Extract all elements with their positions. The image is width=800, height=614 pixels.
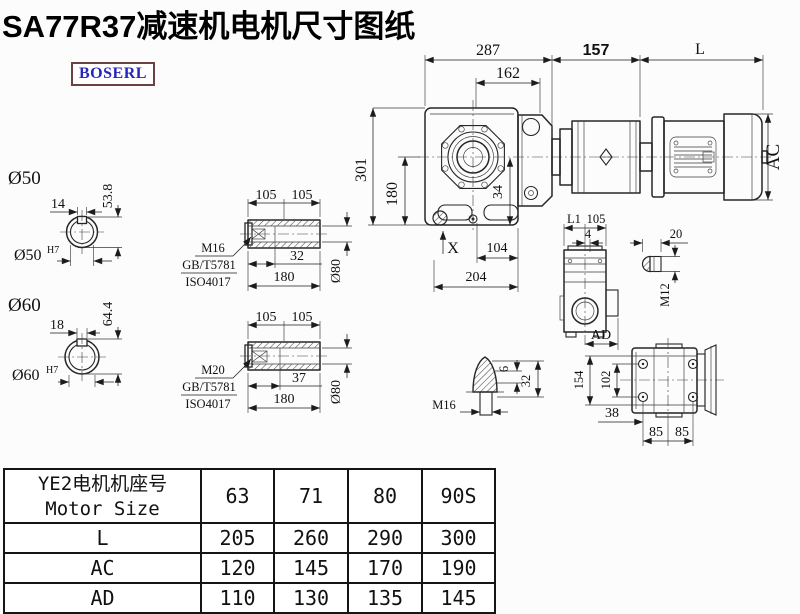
gearbox-front-view xyxy=(425,100,552,232)
dim-dia-20: Ø80 xyxy=(329,380,344,404)
dim-keyh-50: 53.8 xyxy=(101,184,116,209)
dim-len-16: 180 xyxy=(274,270,295,285)
gearbox-side-view: L1 105 4 AD xyxy=(560,212,618,350)
size-90s: 90S xyxy=(422,469,495,523)
row-label-AD: AD xyxy=(4,583,201,613)
header-cn: YE2电机机座号 xyxy=(5,472,200,497)
header-cell-motor-size: YE2电机机座号 Motor Size xyxy=(4,469,201,523)
dim-depth-20: 37 xyxy=(292,371,306,386)
brand-logo: BOSERL xyxy=(71,62,155,86)
dim-keyw-60: 18 xyxy=(50,318,64,333)
dim-keyw-50: 14 xyxy=(51,197,65,212)
section50-label: Ø50 xyxy=(8,168,41,189)
dim-105b-16: 105 xyxy=(292,188,313,203)
output-bore-section-50: Ø50 14 53.8 Ø50 H7 xyxy=(8,168,122,266)
dim-157: 157 xyxy=(583,42,610,59)
dim-4: 4 xyxy=(585,227,592,241)
bore-tol-50: H7 xyxy=(47,245,59,256)
dim-L: L xyxy=(695,41,705,58)
dim-32b: 32 xyxy=(519,375,533,388)
size-80: 80 xyxy=(348,469,422,523)
header-en: Motor Size xyxy=(5,497,200,521)
row-label-AC: AC xyxy=(4,553,201,583)
section60-label: Ø60 xyxy=(8,295,41,316)
value-L-90s: 300 xyxy=(422,523,495,553)
value-L-63: 205 xyxy=(201,523,274,553)
dim-105a-16: 105 xyxy=(256,188,277,203)
output-bore-section-60: Ø60 18 64.4 Ø60 H7 xyxy=(8,295,122,387)
bore-label-60: Ø60 xyxy=(12,367,40,384)
dim-102: 102 xyxy=(599,371,613,390)
value-AC-63: 120 xyxy=(201,553,274,583)
hollow-shaft-drawing-m20: 105 105 37 180 Ø80 M20 GB/T5781 ISO4017 xyxy=(181,310,352,413)
dim-dia-16: Ø80 xyxy=(329,259,344,283)
value-L-71: 260 xyxy=(274,523,348,553)
table-header-row: YE2电机机座号 Motor Size 63 71 80 90S xyxy=(4,469,495,523)
table-row-AC: AC 120 145 170 190 xyxy=(4,553,495,583)
dim-depth-16: 32 xyxy=(290,249,304,264)
std-label-16: GB/T5781 xyxy=(182,258,235,272)
breather-plug-view: M16 6 32 xyxy=(432,357,544,415)
thread-label-m12: M12 xyxy=(658,283,672,307)
row-label-L: L xyxy=(4,523,201,553)
thread-label-m16: M16 xyxy=(201,241,225,255)
value-AD-71: 130 xyxy=(274,583,348,613)
dim-keyh-60: 64.4 xyxy=(101,302,116,327)
dim-104: 104 xyxy=(487,241,508,256)
dim-180: 180 xyxy=(384,182,401,206)
drain-plug xyxy=(433,211,447,225)
std-label-20: GB/T5781 xyxy=(182,380,235,394)
dim-6: 6 xyxy=(497,366,511,372)
value-AC-90s: 190 xyxy=(422,553,495,583)
dim-85a: 85 xyxy=(649,425,663,440)
motor-side-view xyxy=(418,114,772,200)
value-AD-63: 110 xyxy=(201,583,274,613)
size-63: 63 xyxy=(201,469,274,523)
dim-34: 34 xyxy=(491,185,506,199)
iso-label-20: ISO4017 xyxy=(185,397,230,411)
main-view-dimensions: 287 157 L 162 301 180 34 X 104 204 xyxy=(353,41,784,292)
table-row-AD: AD 110 130 135 145 xyxy=(4,583,495,613)
motor-size-table: YE2电机机座号 Motor Size 63 71 80 90S L 205 2… xyxy=(3,468,496,614)
value-L-80: 290 xyxy=(348,523,422,553)
bore-tol-60: H7 xyxy=(46,365,58,376)
dim-85b: 85 xyxy=(675,425,689,440)
dim-L1: L1 xyxy=(567,212,581,226)
dim-204: 204 xyxy=(466,270,487,285)
mounting-face-view: 154 102 38 85 85 xyxy=(572,338,724,446)
dim-AC: AC xyxy=(763,144,784,170)
dim-X: X xyxy=(447,240,459,257)
dim-105a-20: 105 xyxy=(256,310,277,325)
value-AC-71: 145 xyxy=(274,553,348,583)
size-71: 71 xyxy=(274,469,348,523)
drawing-sheet: 287 157 L 162 301 180 34 X 104 204 xyxy=(0,0,800,613)
value-AD-90s: 145 xyxy=(422,583,495,613)
dim-154: 154 xyxy=(572,370,586,390)
dim-301: 301 xyxy=(353,158,370,182)
bore-label-50: Ø50 xyxy=(14,247,42,264)
thread-label-m20: M20 xyxy=(201,363,225,377)
dim-AD: AD xyxy=(591,328,611,343)
balance-mark xyxy=(600,149,612,165)
hollow-shaft-drawing-m16: 105 105 32 180 Ø80 M16 GB/T5781 ISO4017 xyxy=(181,188,352,291)
value-AD-80: 135 xyxy=(348,583,422,613)
dim-287: 287 xyxy=(476,42,500,59)
dim-20: 20 xyxy=(670,227,683,241)
iso-label-16: ISO4017 xyxy=(185,275,230,289)
dim-162: 162 xyxy=(496,65,520,82)
m12-plug-view: 20 M12 xyxy=(630,227,688,307)
page-title: SA77R37减速机电机尺寸图纸 xyxy=(2,1,415,46)
dim-105b-20: 105 xyxy=(292,310,313,325)
dim-105-side: 105 xyxy=(587,212,606,226)
value-AC-80: 170 xyxy=(348,553,422,583)
dim-len-20: 180 xyxy=(274,392,295,407)
dim-38: 38 xyxy=(605,406,619,421)
thread-label-m16b: M16 xyxy=(432,398,456,412)
table-row-L: L 205 260 290 300 xyxy=(4,523,495,553)
